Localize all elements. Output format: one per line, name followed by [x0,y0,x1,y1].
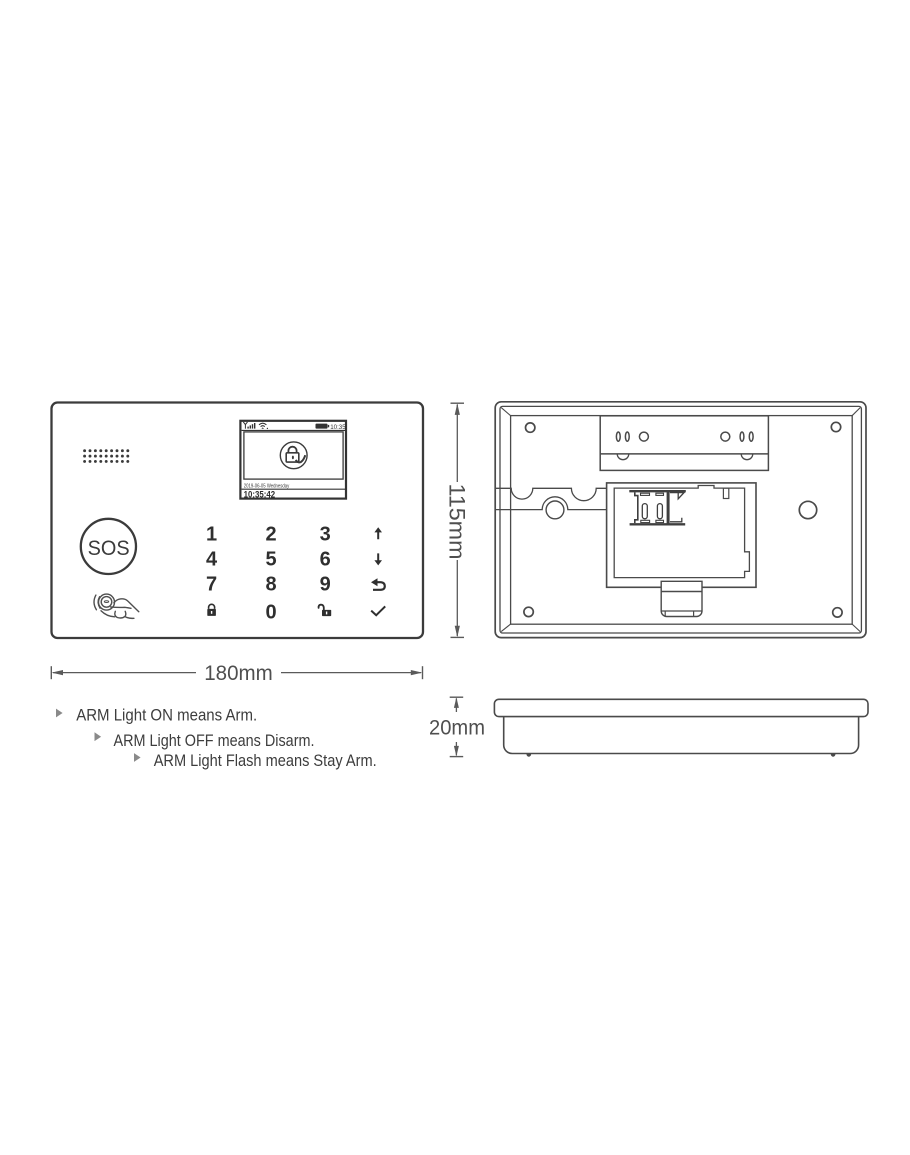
svg-text:SOS: SOS [88,536,130,560]
svg-text:5: 5 [265,548,276,570]
svg-text:10:35:42: 10:35:42 [244,489,276,499]
svg-text:1: 1 [206,523,217,545]
svg-text:4: 4 [206,548,218,570]
svg-text:115mm: 115mm [445,484,470,560]
svg-text:9: 9 [320,573,331,595]
svg-text:ARM Light ON means Arm.: ARM Light ON means Arm. [76,706,257,725]
svg-text:ARM Light Flash means Stay Arm: ARM Light Flash means Stay Arm. [154,751,377,770]
svg-text:10:35: 10:35 [330,424,346,431]
svg-text:2: 2 [265,523,276,545]
svg-text:180mm: 180mm [204,661,273,685]
svg-text:6: 6 [320,548,331,570]
svg-text:3: 3 [320,523,331,545]
svg-text:ARM Light OFF means Disarm.: ARM Light OFF means Disarm. [114,731,315,750]
svg-text:0: 0 [265,601,276,623]
svg-text:8: 8 [265,573,276,595]
svg-text:20mm: 20mm [429,716,485,740]
svg-text:7: 7 [206,573,217,595]
